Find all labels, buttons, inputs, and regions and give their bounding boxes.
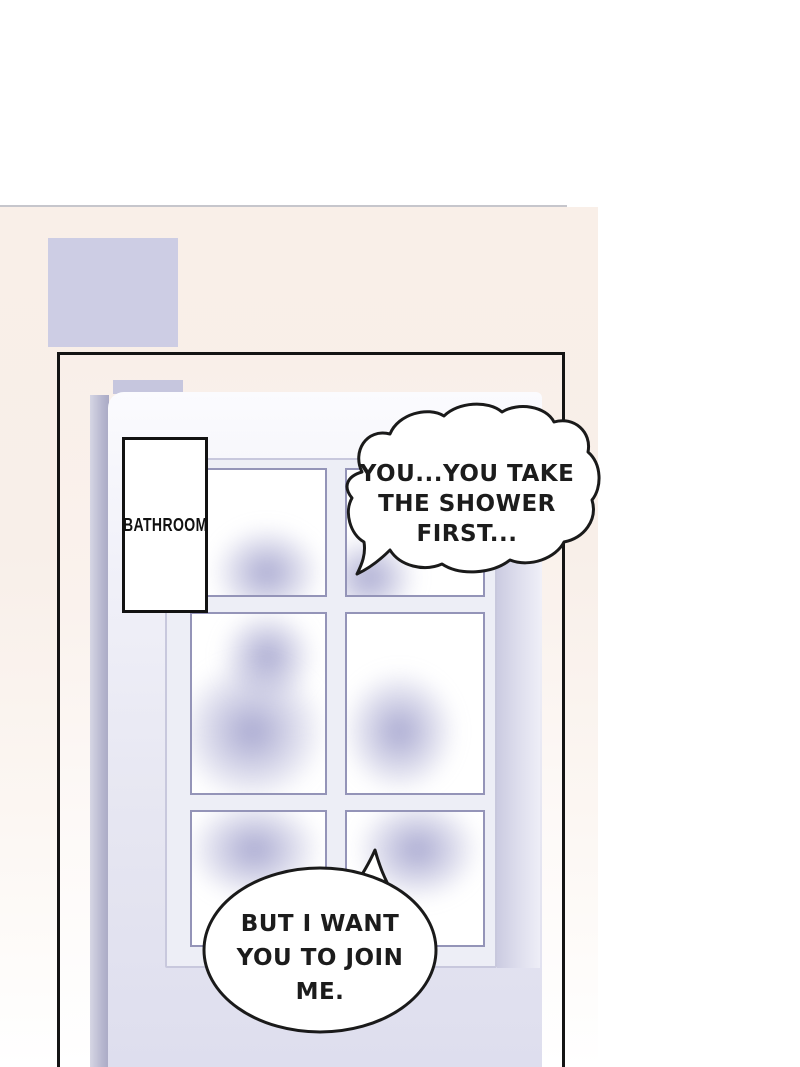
glass-pane-middle-left — [190, 612, 327, 795]
lavender-wall-patch — [48, 238, 178, 347]
bathroom-sign: BATHROOM — [122, 437, 208, 613]
bathroom-sign-label: BATHROOM — [123, 515, 208, 536]
speech-bubble-bottom-text: BUT I WANT YOU TO JOIN ME. — [210, 907, 430, 1009]
silhouette-blur — [212, 525, 322, 597]
silhouette-blur — [345, 669, 457, 794]
door-jamb — [90, 395, 109, 1067]
wall-divider-line — [0, 205, 567, 207]
comic-page: BATHROOM YOU...YOU TAKE THE SHOWER FIRST… — [0, 0, 800, 1067]
speech-bubble-top-text: YOU...YOU TAKE THE SHOWER FIRST... — [352, 459, 582, 549]
glass-pane-middle-right — [345, 612, 485, 795]
glass-pane-top-left — [190, 468, 327, 597]
